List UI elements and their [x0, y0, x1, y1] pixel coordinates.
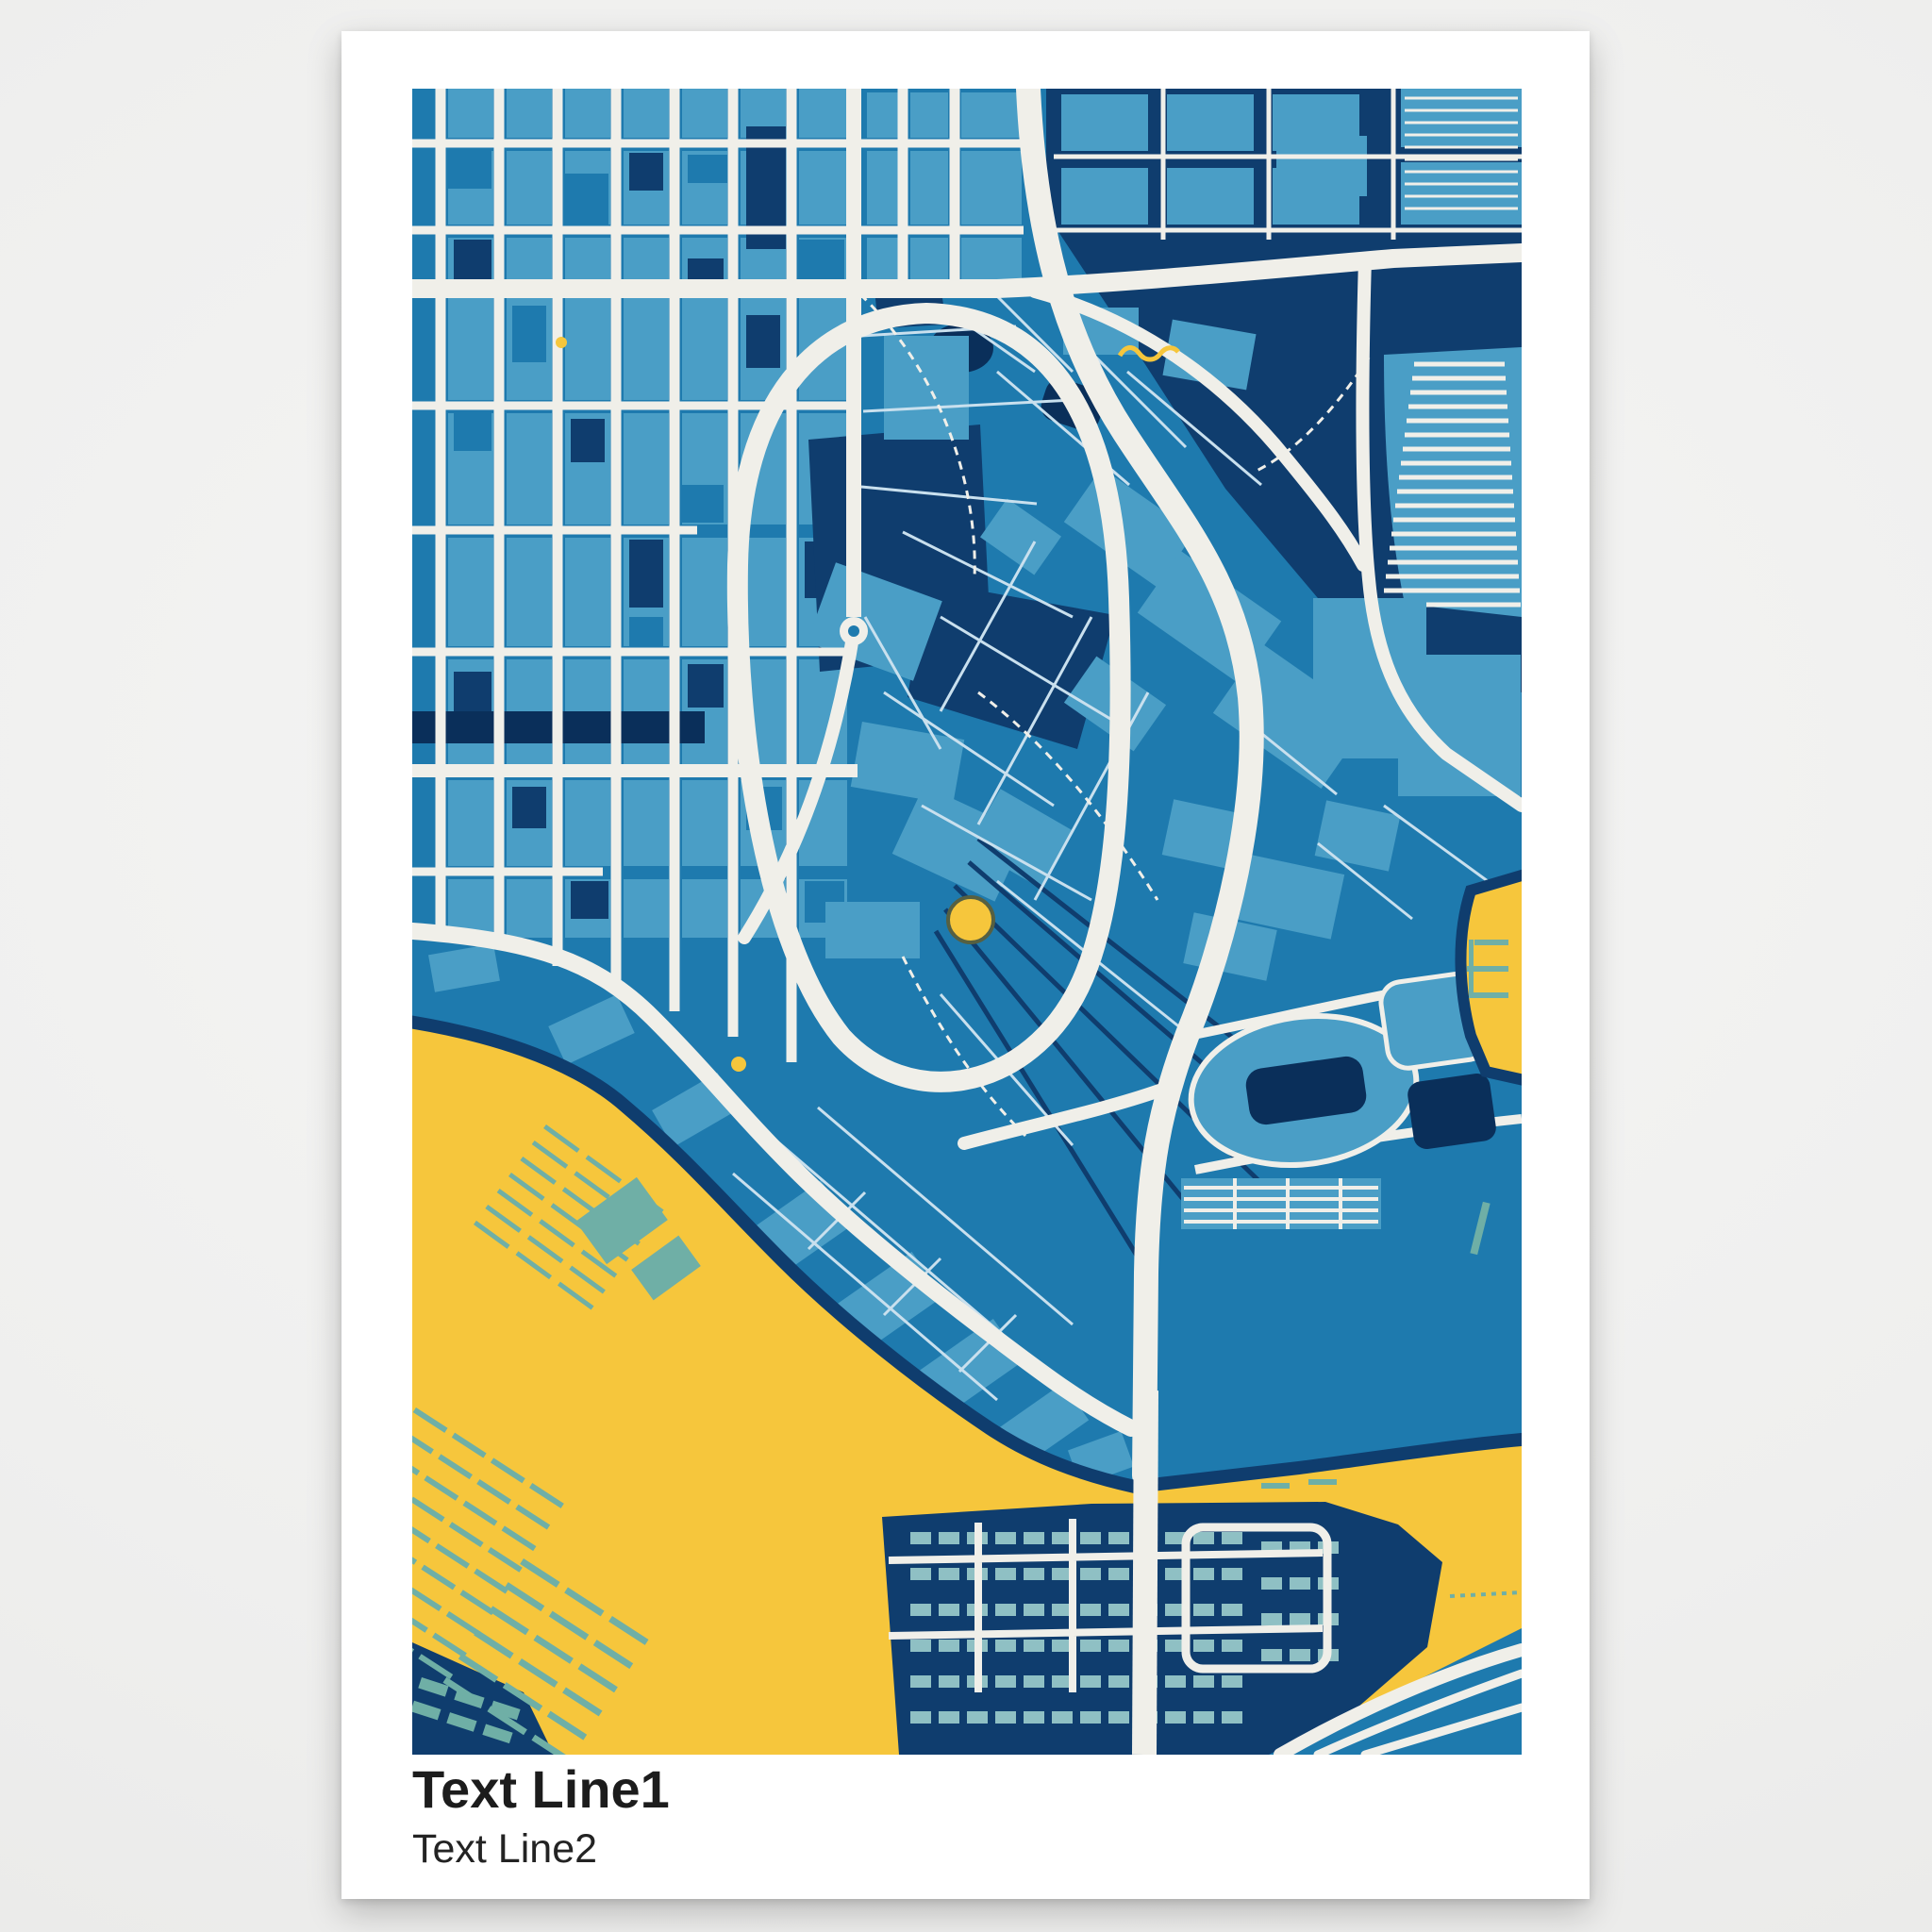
- stadium-rect-field: [1406, 1072, 1497, 1151]
- grid-accents-blue: [448, 151, 491, 189]
- page-background: Text Line1 Text Line2: [0, 0, 1932, 1932]
- city-map-print: [412, 89, 1522, 1755]
- grid-accents-blue: [512, 306, 546, 362]
- grid-accents-navy: [688, 664, 724, 708]
- caption-line2: Text Line2: [412, 1829, 670, 1870]
- campus-buildings: [884, 336, 969, 440]
- poster-caption: Text Line1 Text Line2: [412, 1763, 670, 1870]
- grid-accents-blue: [682, 485, 724, 523]
- map-canvas: [412, 89, 1522, 1755]
- small-landmarks: [731, 1057, 746, 1072]
- grid-accents-navy: [454, 240, 491, 279]
- roundabout-center: [848, 625, 859, 637]
- piers: [1261, 1483, 1290, 1489]
- grid-accents-blue: [454, 413, 491, 451]
- grid-accents-blue: [799, 240, 844, 281]
- grid-accents-navy: [571, 419, 605, 462]
- campus-buildings: [825, 902, 920, 958]
- grid-accents-blue: [688, 155, 731, 183]
- piers: [1308, 1479, 1337, 1485]
- grid-accents-navy: [629, 153, 663, 191]
- caption-line1: Text Line1: [412, 1763, 670, 1816]
- grid-accents-navy: [746, 315, 780, 368]
- piers: [1474, 940, 1508, 945]
- grid-accents-blue: [565, 174, 608, 225]
- grid-accents-navy: [571, 881, 608, 919]
- map-marker: [948, 897, 993, 942]
- grid-accents-navy: [512, 787, 546, 828]
- grid-blocks-ne: [867, 92, 1022, 280]
- grid-accents-navy: [629, 540, 663, 608]
- ne-blocks-2: [1276, 136, 1367, 196]
- piers: [1471, 992, 1508, 998]
- piers: [1469, 940, 1474, 998]
- freeway-bridge: [1144, 1391, 1146, 1755]
- map-poster: Text Line1 Text Line2: [341, 31, 1590, 1899]
- small-landmarks: [556, 337, 567, 348]
